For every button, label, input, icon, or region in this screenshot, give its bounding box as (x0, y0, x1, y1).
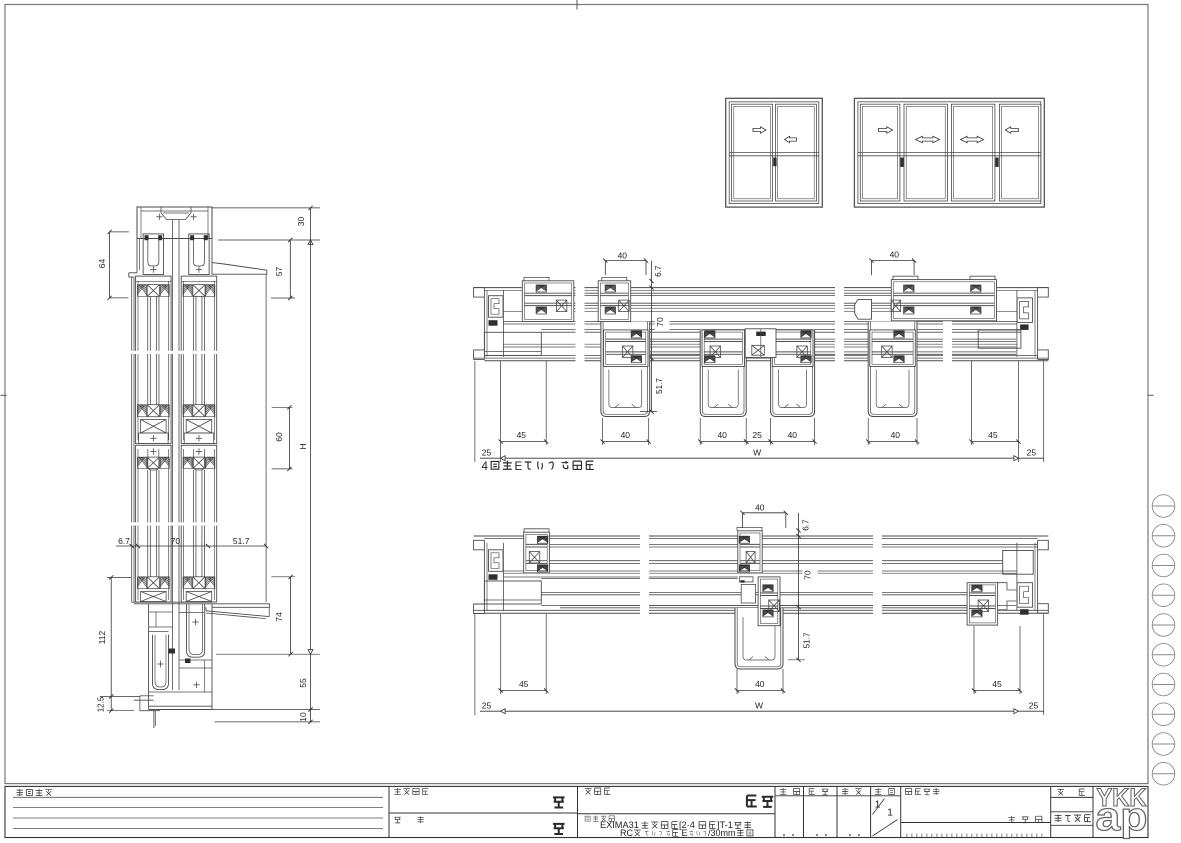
svg-text:60: 60 (274, 432, 284, 442)
svg-text:4: 4 (482, 461, 489, 473)
svg-text:40: 40 (618, 250, 628, 260)
svg-text:25: 25 (1027, 448, 1037, 458)
svg-text:ap: ap (1096, 795, 1148, 839)
svg-text:55: 55 (298, 678, 308, 688)
svg-text:70: 70 (655, 317, 665, 327)
svg-text:30: 30 (296, 217, 306, 227)
svg-text:RC: RC (620, 828, 633, 838)
svg-text:45: 45 (992, 679, 1002, 689)
svg-text:/30mm: /30mm (708, 828, 736, 838)
svg-text:51.7: 51.7 (233, 536, 250, 546)
svg-text:40: 40 (755, 503, 765, 513)
svg-text:40: 40 (755, 679, 765, 689)
svg-text:40: 40 (621, 430, 631, 440)
svg-text:40: 40 (788, 430, 798, 440)
svg-text:70: 70 (171, 536, 181, 546)
svg-text:6.7: 6.7 (802, 519, 811, 531)
svg-text:64: 64 (97, 259, 107, 269)
svg-text:25: 25 (1029, 701, 1039, 711)
svg-text:45: 45 (988, 430, 998, 440)
svg-text:40: 40 (891, 430, 901, 440)
svg-text:45: 45 (519, 679, 529, 689)
svg-text:W: W (755, 701, 763, 711)
svg-text:W: W (753, 448, 761, 458)
svg-text:E: E (515, 461, 523, 473)
svg-text:51.7: 51.7 (803, 632, 812, 648)
svg-text:25: 25 (482, 448, 492, 458)
svg-text:12.5: 12.5 (97, 696, 106, 712)
svg-text:70: 70 (802, 570, 812, 580)
svg-text:45: 45 (517, 430, 527, 440)
svg-text:40: 40 (717, 430, 727, 440)
svg-text:57: 57 (274, 267, 284, 277)
svg-text:74: 74 (274, 612, 284, 622)
svg-text:112: 112 (97, 630, 107, 644)
svg-text:H: H (298, 443, 308, 449)
svg-text:6.7: 6.7 (118, 536, 130, 546)
svg-text:E: E (682, 828, 688, 838)
svg-text:1: 1 (887, 807, 893, 819)
svg-text:10: 10 (298, 712, 308, 722)
svg-text:6.7: 6.7 (654, 265, 663, 277)
svg-text:25: 25 (482, 701, 492, 711)
svg-text:25: 25 (752, 430, 762, 440)
svg-text:51.7: 51.7 (655, 378, 664, 394)
svg-text:40: 40 (890, 249, 900, 259)
